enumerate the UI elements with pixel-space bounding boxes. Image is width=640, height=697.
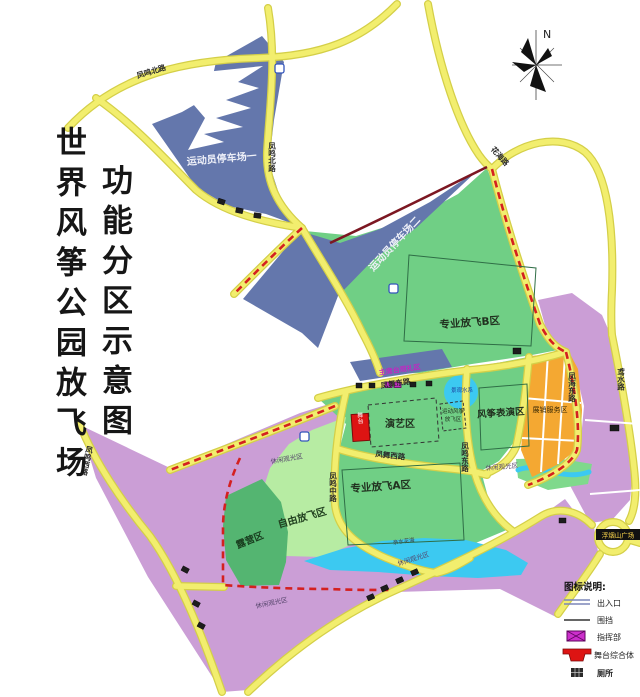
legend-entrance-label: 出入口	[597, 598, 621, 608]
compass-rose-icon: N	[512, 28, 562, 100]
road-roundabout-east	[630, 540, 640, 543]
kite-park-map: 舞台 浮烟山广场 运动员停车场一 运动员停车场二 专业放飞B区 专业放飞A区 演…	[0, 0, 640, 697]
label-performance: 演艺区	[385, 417, 415, 430]
label-sport-kite-1: 运动风筝	[442, 407, 465, 415]
label-road-fengming-middle: 凤鸣中路	[328, 472, 337, 504]
legend-title: 图标说明:	[564, 581, 606, 593]
label-road-yuanshui: 鸢水路	[616, 367, 625, 392]
legend-toilet-label: 厕所	[597, 668, 613, 678]
legend-stage-label: 舞台综合体	[594, 650, 634, 660]
road-stub	[176, 586, 224, 587]
label-road-fenghai-east: 凤海东路	[567, 372, 576, 404]
plaza-badge-label: 浮烟山广场	[602, 531, 635, 540]
stage-complex-label: 舞台	[355, 411, 363, 425]
map-title-line1: 世界风筝公园放飞场	[52, 126, 83, 486]
legend-fence-label: 围挡	[597, 615, 613, 625]
label-road-fengming-north-2: 凤鸣北路	[267, 142, 276, 174]
stage-legend-icon	[563, 649, 591, 661]
label-water-system: 景观水系	[451, 386, 474, 394]
map-title-line2: 功能分区示意图	[98, 164, 129, 444]
label-expo: 展销服务区	[533, 405, 568, 414]
toilet-legend-icon	[571, 668, 583, 677]
label-sport-kite-2: 放飞区	[445, 415, 462, 423]
label-road-fengming-east: 凤鸣东路	[460, 442, 469, 474]
legend-command-label: 指挥部	[597, 632, 621, 642]
road-north-2	[428, 4, 492, 169]
compass-north-label: N	[543, 28, 551, 41]
command-post-legend-icon	[567, 631, 585, 641]
